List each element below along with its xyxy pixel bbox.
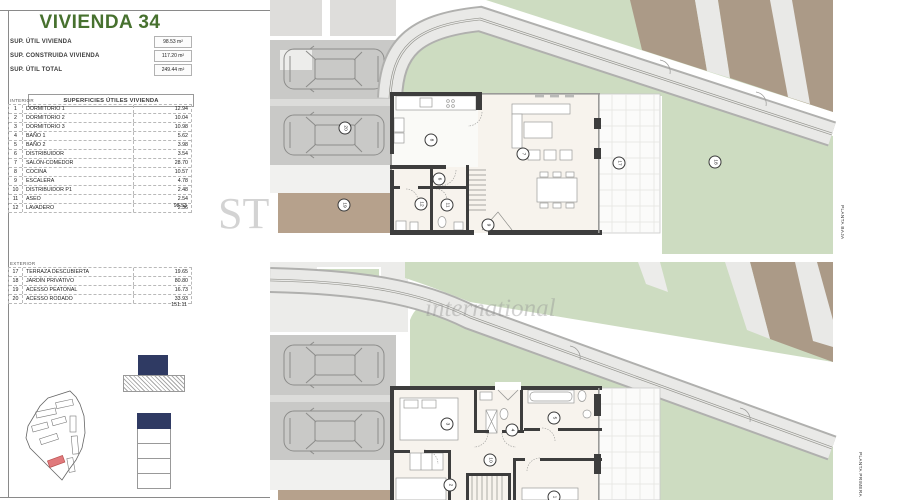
sidewalk-strip	[270, 165, 396, 193]
table-row: 7SALÓN-COMEDOR28.70	[9, 159, 191, 168]
room-name: ACESSO PEATONAL	[23, 286, 133, 294]
sidewalk-strip	[270, 460, 396, 490]
house-ground-floor	[390, 92, 602, 235]
room-name: ASEO	[23, 195, 133, 203]
room-area: 2.54	[133, 195, 191, 203]
room-area: 3.98	[133, 141, 191, 149]
table-row: 6DISTRIBUIDOR3.54	[9, 150, 191, 159]
room-name: DISTRIBUIDOR	[23, 150, 133, 158]
bedroom1-furniture	[522, 488, 578, 500]
room-name: TERRAZA DESCUBIERTA	[23, 268, 133, 276]
plan-label-planta-baja: PLANTA BAJA	[840, 205, 845, 239]
summary-value: 249.44 m²	[154, 64, 192, 76]
room-name: DORMITORIO 3	[23, 123, 133, 131]
row-number: 4	[9, 132, 23, 140]
room-area: 5.62	[133, 132, 191, 140]
legend-ground-hatch	[123, 375, 185, 392]
table-row: 9ESCALERA4.78	[9, 177, 191, 186]
legend-level-stack	[137, 413, 171, 489]
room-name: COCINA	[23, 168, 133, 176]
room-area: 16.73	[133, 286, 191, 294]
room-area: 19.65	[133, 268, 191, 276]
summary-row: SUP. CONSTRUIDA VIVIENDA 117.20 m²	[10, 50, 192, 61]
room-name: DISTRIBUIDOR P1	[23, 186, 133, 194]
table-row: 3DORMITORIO 310.98	[9, 123, 191, 132]
table-row: 5BAÑO 23.98	[9, 141, 191, 150]
summary-label: SUP. ÚTIL TOTAL	[10, 67, 62, 73]
terrace	[598, 388, 660, 500]
page-title: VIVIENDA 34	[0, 12, 200, 34]
table-row: 17TERRAZA DESCUBIERTA19.65	[9, 268, 191, 277]
room-area: 10.04	[133, 114, 191, 122]
room-area: 28.70	[133, 159, 191, 167]
terrace	[598, 94, 660, 233]
row-number: 5	[9, 141, 23, 149]
plan-planta-baja: 8769111217181920	[270, 0, 845, 256]
row-number: 6	[9, 150, 23, 158]
table-row: 1DORMITORIO 112.94	[9, 105, 191, 114]
plan-label-planta-primera: PLANTA PRIMERA	[858, 452, 863, 497]
room-name: JARDÍN PRIVATIVO	[23, 277, 133, 285]
interior-total: 98.53	[8, 203, 190, 209]
row-number: 8	[9, 168, 23, 176]
legend-ground-floor-block	[138, 355, 168, 375]
row-number: 10	[9, 186, 23, 194]
info-panel: VIVIENDA 34 SUP. ÚTIL VIVIENDA 98.53 m² …	[0, 0, 273, 500]
room-area: 12.94	[133, 105, 191, 113]
row-number: 18	[9, 277, 23, 285]
row-number: 3	[9, 123, 23, 131]
plan-sheet: VIVIENDA 34 SUP. ÚTIL VIVIENDA 98.53 m² …	[0, 0, 900, 500]
row-number: 17	[9, 268, 23, 276]
pedestrian-access-strip	[278, 193, 396, 233]
room-name: DORMITORIO 1	[23, 105, 133, 113]
row-number: 1	[9, 105, 23, 113]
interior-table: 1DORMITORIO 112.942DORMITORIO 210.043DOR…	[8, 104, 192, 213]
site-key-map	[18, 388, 90, 488]
room-area: 10.57	[133, 168, 191, 176]
table-row: 8COCINA10.57	[9, 168, 191, 177]
plan-planta-primera: 3451021	[270, 262, 845, 500]
site-boundary	[26, 391, 85, 480]
exterior-section-label: EXTERIOR	[10, 261, 35, 266]
room-area: 3.54	[133, 150, 191, 158]
room-name: ESCALERA	[23, 177, 133, 185]
room-name: BAÑO 1	[23, 132, 133, 140]
room-area: 2.48	[133, 186, 191, 194]
row-number: 19	[9, 286, 23, 294]
row-number: 2	[9, 114, 23, 122]
summary-label: SUP. ÚTIL VIVIENDA	[10, 39, 72, 45]
table-row: 4BAÑO 15.62	[9, 132, 191, 141]
planta-baja-drawing	[270, 0, 845, 256]
room-area: 80.80	[133, 277, 191, 285]
neighbour-blocks	[270, 0, 396, 36]
table-row: 18JARDÍN PRIVATIVO80.80	[9, 277, 191, 286]
row-number: 11	[9, 195, 23, 203]
row-number: 7	[9, 159, 23, 167]
row-number: 9	[9, 177, 23, 185]
interior-section-label: INTERIOR	[10, 98, 34, 103]
table-row: 10DISTRIBUIDOR P12.48	[9, 186, 191, 195]
room-area: 4.78	[133, 177, 191, 185]
parking-area	[270, 335, 396, 460]
room-name: SALÓN-COMEDOR	[23, 159, 133, 167]
house-first-floor	[390, 382, 602, 500]
pedestrian-access-strip	[278, 490, 396, 500]
parking-area	[270, 40, 396, 165]
table-row: 2DORMITORIO 210.04	[9, 114, 191, 123]
legend-level-highlight	[137, 413, 171, 429]
exterior-table: 17TERRAZA DESCUBIERTA19.6518JARDÍN PRIVA…	[8, 267, 192, 304]
room-area: 10.98	[133, 123, 191, 131]
summary-row: SUP. ÚTIL TOTAL 249.44 m²	[10, 64, 192, 75]
summary-value: 98.53 m²	[154, 36, 192, 48]
summary-row: SUP. ÚTIL VIVIENDA 98.53 m²	[10, 36, 192, 47]
room-name: DORMITORIO 2	[23, 114, 133, 122]
planta-primera-drawing	[270, 262, 845, 500]
summary-value: 117.20 m²	[154, 50, 192, 62]
exterior-total: 151.11	[8, 302, 190, 308]
table-row: 19ACESSO PEATONAL16.73	[9, 286, 191, 295]
summary-label: SUP. CONSTRUIDA VIVIENDA	[10, 53, 99, 59]
room-name: BAÑO 2	[23, 141, 133, 149]
